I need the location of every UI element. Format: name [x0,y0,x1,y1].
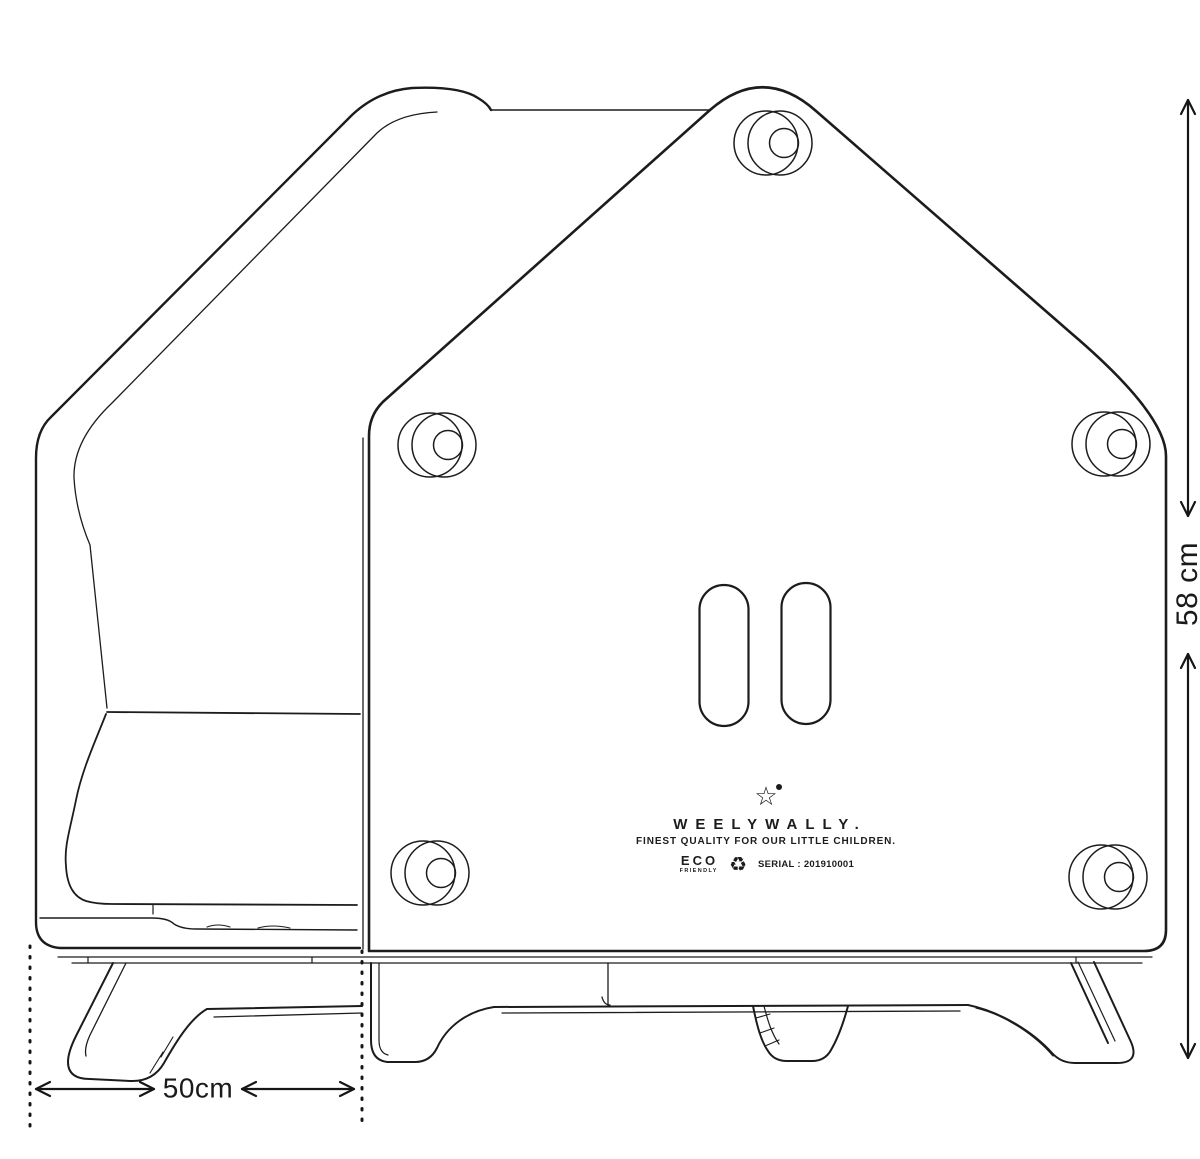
leg-left [371,963,494,1062]
brand-name: WEELYWALLY. [665,816,867,833]
base-plate [58,951,1152,963]
roof-side-panel [36,88,491,948]
rail-left-bottom [214,1013,362,1017]
rail-right-top [494,1005,968,1007]
roof-panel-inner-edge [74,112,437,708]
base-front-edge [40,918,357,930]
cap-upper-left [398,413,476,477]
cap-lower-right [1069,845,1147,909]
height-dimension-label: 58 cm [1171,542,1200,626]
eco-label: ECO [678,854,718,867]
friendly-label: FRIENDLY [678,869,718,875]
cap-peak [734,111,812,175]
rail-right-bottom [502,1011,960,1013]
leg-far-right [968,962,1134,1063]
star-icon: ☆ [754,782,777,812]
recycle-icon: ♻ [729,854,747,874]
star-dot [776,784,782,790]
seat-cushion [40,712,360,930]
handle-slots [700,583,831,726]
technical-drawing-page: { "page": { "background": "#ffffff", "in… [0,0,1200,1159]
serial-label: SERIAL : 201910001 [758,859,854,870]
base-board-joint [602,963,610,1005]
cushion-profile [66,714,357,905]
cap-upper-right [1072,412,1150,476]
foot-far-left [68,963,207,1081]
handle-slot-right [782,583,831,724]
rail-left-top [207,1006,362,1009]
dimension-lines [30,100,1195,1128]
eco-friendly-label: ECO FRIENDLY [678,854,718,874]
eco-row: ECO FRIENDLY ♻ SERIAL : 201910001 [678,854,854,874]
handle-slot-left [700,585,749,726]
foot-middle-right [753,1006,848,1061]
brand-tagline: FINEST QUALITY FOR OUR LITTLE CHILDREN. [636,836,896,847]
cap-lower-left [391,841,469,905]
seat-top-edge [107,712,360,714]
brand-block: ☆ WEELYWALLY. FINEST QUALITY FOR OUR LIT… [636,782,896,874]
width-dimension-label: 50cm [163,1072,233,1104]
furniture-line-art [0,0,1200,1159]
feet [68,962,1134,1081]
